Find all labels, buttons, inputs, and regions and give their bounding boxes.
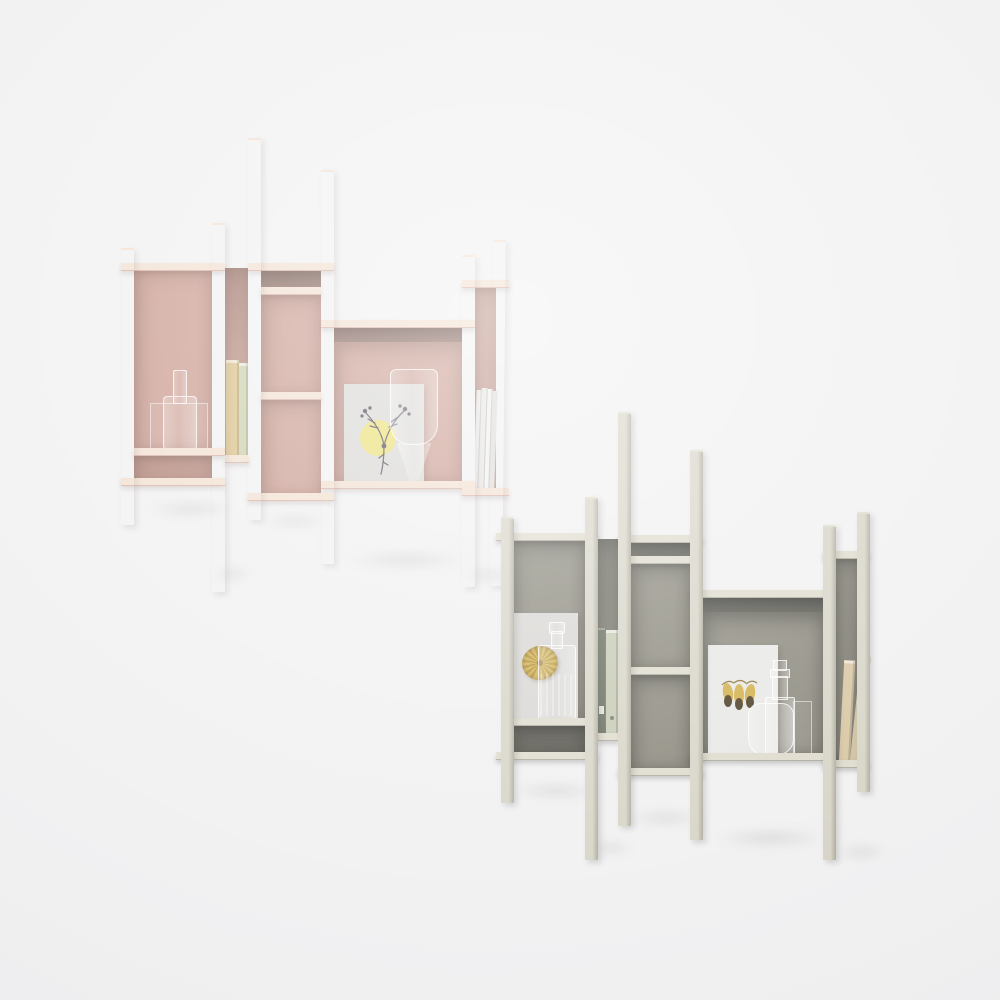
shelf-board [690,590,836,598]
shelf-board [121,263,225,271]
shelf-board [598,733,619,741]
vase-cone [396,443,432,481]
glass-vase [388,369,440,481]
book-spine [226,360,239,455]
binder-ring-hole [610,716,614,720]
vertical-panel [585,497,598,860]
shelf-board [321,481,475,489]
vertical-panel [618,412,631,826]
book-spine [239,363,248,455]
vertical-panel [121,248,134,525]
compartment-recess [702,597,823,612]
compartment-back [509,725,585,752]
compartment-recess [630,542,690,556]
vertical-panel [212,223,225,592]
shelf-board [261,287,321,295]
vertical-panel [823,525,836,860]
product-photo-scene [0,0,1000,1000]
vertical-panel [690,450,703,840]
bookcase-grey [490,408,890,873]
glass-cube [793,701,812,755]
compartment-recess [261,270,321,287]
glass-bottle [536,622,576,718]
compartment-back [630,674,690,768]
binder-label [599,706,604,714]
vertical-panel [321,170,334,564]
shelf-board [261,392,321,400]
two-books [226,360,248,455]
carafe-round [748,703,794,755]
ring-binders [598,628,618,733]
vertical-panel [857,512,870,792]
vase-bowl [390,369,438,445]
bookcase-pink [115,135,515,600]
bottle-body [163,396,197,450]
compartment-back [630,561,690,667]
shelf-board [690,753,836,761]
shelf-board [225,455,249,463]
shelf-board [630,667,690,675]
vertical-panel [462,255,475,587]
compartment-back [261,292,321,393]
glass-bottle [159,370,199,448]
compartment-back [261,398,321,493]
vertical-panel [248,138,261,520]
shelf-board [321,320,475,328]
compartment-back [134,455,212,478]
bottle-facets [540,674,572,716]
shelf-board [121,478,225,486]
vertical-panel [501,517,514,803]
shelf-board [630,556,690,564]
glass-decanters [748,660,810,753]
compartment-recess [334,327,462,342]
binder-spine [598,628,605,733]
